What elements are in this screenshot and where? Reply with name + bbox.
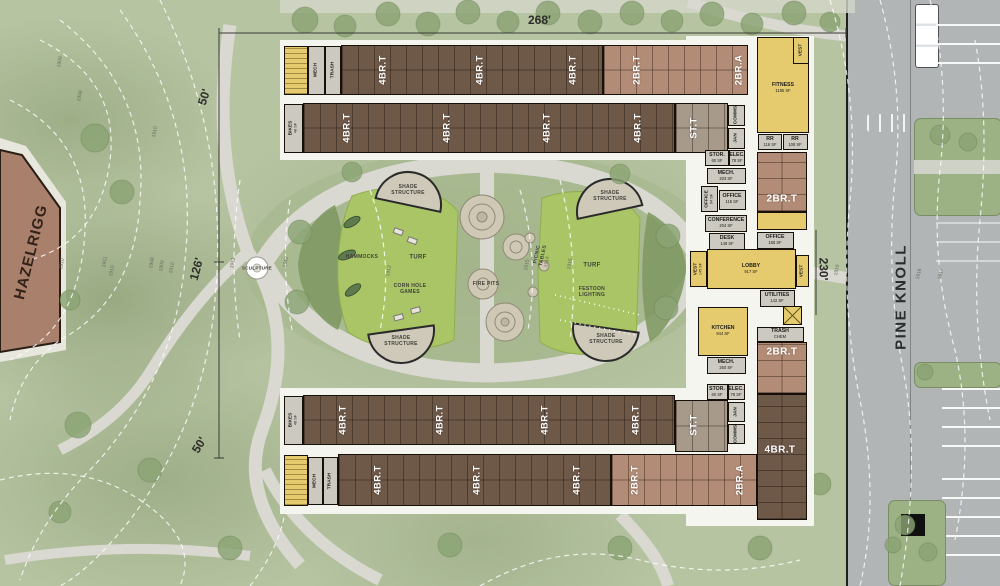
- room-name: MECH: [312, 474, 317, 488]
- room-area: 260 SF: [719, 366, 732, 371]
- contour-elevation-label: 1910: [168, 262, 176, 274]
- contour-elevation-label: 1914: [543, 256, 551, 268]
- unit-label: 4BR.T: [568, 55, 579, 84]
- room-label: CONFERENCE204 SF: [708, 218, 744, 228]
- room-area: 48 SF: [294, 123, 298, 133]
- room-area: 1195 SF: [775, 89, 790, 94]
- room-name: COMMS: [733, 425, 738, 443]
- unit-label: 4BR.T: [765, 445, 796, 456]
- unit-label: 4BR.T: [542, 113, 553, 142]
- contour-elevation-label: 1913: [385, 265, 393, 277]
- room-area: 917 SF: [744, 270, 757, 275]
- service-room-label: MECH: [313, 63, 318, 77]
- park-feature-label: FIRE PITS: [473, 281, 500, 287]
- room-label: OFFICE158 SF: [765, 235, 784, 245]
- service-room-label: BIKES48 SF: [288, 121, 297, 136]
- room-label: STOR.60 SF: [709, 153, 725, 163]
- unit-label: 4BR.T: [633, 113, 644, 142]
- contour-elevation-label: 1916: [566, 258, 574, 270]
- room-label: RR116 SF: [764, 137, 777, 147]
- service-room-label: VEST: [798, 44, 803, 57]
- room-name: JAN: [733, 407, 738, 417]
- room-label: LOBBY917 SF: [742, 264, 760, 274]
- park-feature-label: SHADE STRUCTURE: [593, 190, 627, 202]
- room-label: TRASHCHEM: [771, 329, 789, 339]
- unit-label: 4BR.T: [472, 465, 483, 494]
- contour-elevation-label: 1909: [158, 260, 166, 272]
- contour-elevation-label: 1910: [58, 258, 66, 270]
- dimension-top: 268': [528, 13, 551, 27]
- park-feature-label: HAMMOCKS: [346, 254, 378, 260]
- room-name: VEST: [799, 265, 804, 278]
- room-area: 48 SF: [294, 415, 298, 425]
- room-area: 203 SF: [719, 177, 732, 182]
- contour-elevation-label: 1915: [523, 259, 531, 271]
- room-label: MECH.203 SF: [718, 171, 735, 181]
- room-label: STOR.60 SF: [709, 387, 725, 397]
- room-area: 116 SF: [764, 143, 777, 148]
- contour-elevation-label: 1909: [56, 56, 64, 68]
- room-area: 115 SF: [726, 200, 739, 205]
- room-area: 94 SF: [710, 194, 714, 204]
- room-label: DESK148 SF: [720, 236, 734, 246]
- room-label: FITNESS1195 SF: [772, 83, 794, 93]
- unit-label: 2BR.A: [734, 55, 745, 86]
- unit-label: 4BR.T: [378, 55, 389, 84]
- unit-label: ST.T: [689, 117, 700, 138]
- room-label: UTILITIES142 SF: [765, 293, 790, 303]
- room-area: 142 SF: [770, 299, 783, 304]
- park-feature-label: SHADE STRUCTURE: [384, 335, 418, 347]
- room-area: 204 SF: [719, 224, 732, 229]
- contour-elevation-label: 1911: [229, 257, 237, 269]
- room-area: CHEM: [774, 335, 786, 340]
- unit-label: 4BR.T: [338, 405, 349, 434]
- unit-label: 4BR.T: [342, 113, 353, 142]
- labels-layer: 4BR.T4BR.T4BR.T2BR.T2BR.A4BR.T4BR.T4BR.T…: [0, 0, 1000, 586]
- park-feature-label: CORN HOLE GAMES: [394, 283, 427, 295]
- room-area: 158 SF: [768, 241, 781, 246]
- unit-label: 4BR.T: [540, 405, 551, 434]
- room-name: TRASH: [327, 473, 332, 490]
- room-area: 108 SF: [788, 143, 801, 148]
- unit-label: 2BR.T: [767, 194, 798, 205]
- unit-label: 4BR.T: [442, 113, 453, 142]
- contour-elevation-label: 1908: [148, 257, 156, 269]
- contour-elevation-label: 1916: [915, 268, 924, 280]
- unit-label: 4BR.T: [373, 465, 384, 494]
- service-room-label: JAN: [733, 407, 738, 417]
- service-room-label: TRASH: [327, 473, 332, 490]
- room-area: 145 SF: [699, 263, 703, 275]
- park-feature-label: TURF: [409, 254, 426, 261]
- room-name: JAN: [733, 133, 738, 143]
- unit-label: 4BR.T: [572, 465, 583, 494]
- service-room-label: TRASH: [330, 62, 335, 79]
- room-name: COMMS: [733, 106, 738, 124]
- park-feature-label: TURF: [583, 262, 600, 269]
- contour-elevation-label: 1917: [937, 268, 946, 280]
- room-label: ELEC.78 SF: [728, 387, 743, 397]
- room-name: MECH: [313, 63, 318, 77]
- unit-label: 2BR.T: [630, 465, 641, 494]
- dimension-right: 230': [816, 258, 830, 281]
- room-area: 60 SF: [712, 393, 723, 398]
- park-feature-label: SHADE STRUCTURE: [391, 184, 425, 196]
- room-name: TRASH: [330, 62, 335, 79]
- room-area: 944 SF: [716, 332, 729, 337]
- contour-elevation-label: 1908: [76, 90, 84, 102]
- unit-label: 4BR.T: [475, 55, 486, 84]
- service-room-label: BIKES48 SF: [288, 413, 297, 428]
- service-room-label: COMMS: [733, 106, 738, 124]
- unit-label: 4BR.T: [631, 405, 642, 434]
- street-name-label: PINE KNOLL: [893, 244, 910, 350]
- service-room-label: OFFICE94 SF: [704, 190, 713, 208]
- unit-label: 4BR.T: [435, 405, 446, 434]
- service-room-label: VEST145 SF: [693, 263, 702, 276]
- contour-elevation-label: 1911: [101, 256, 109, 268]
- service-room-label: MECH: [312, 474, 317, 488]
- service-room-label: VEST: [799, 265, 804, 278]
- room-label: OFFICE115 SF: [722, 194, 741, 204]
- contour-elevation-label: 1912: [282, 256, 290, 268]
- service-room-label: COMMS: [733, 425, 738, 443]
- unit-label: 2BR.T: [767, 347, 798, 358]
- park-feature-label: SHADE STRUCTURE: [589, 333, 623, 345]
- park-feature-label: FESTOON LIGHTING: [579, 286, 605, 298]
- unit-label: ST.T: [689, 414, 700, 435]
- room-area: 78 SF: [732, 159, 743, 164]
- service-room-label: JAN: [733, 133, 738, 143]
- unit-label: 2BR.A: [735, 465, 746, 496]
- site-plan-canvas: 4BR.T4BR.T4BR.T2BR.T2BR.A4BR.T4BR.T4BR.T…: [0, 0, 1000, 586]
- park-feature-label: SCULPTURE: [242, 265, 272, 270]
- contour-elevation-label: 1910: [108, 265, 116, 277]
- contour-elevation-label: 1916: [833, 264, 841, 276]
- room-label: KITCHEN944 SF: [711, 326, 734, 336]
- room-area: 148 SF: [720, 242, 733, 247]
- contour-elevation-label: 1910: [151, 126, 159, 138]
- room-label: MECH.260 SF: [718, 360, 735, 370]
- room-area: 60 SF: [712, 159, 723, 164]
- unit-label: 2BR.T: [632, 55, 643, 84]
- room-area: 78 SF: [731, 393, 742, 398]
- room-label: ELEC.78 SF: [729, 153, 744, 163]
- room-name: VEST: [798, 44, 803, 57]
- room-label: RR108 SF: [788, 137, 801, 147]
